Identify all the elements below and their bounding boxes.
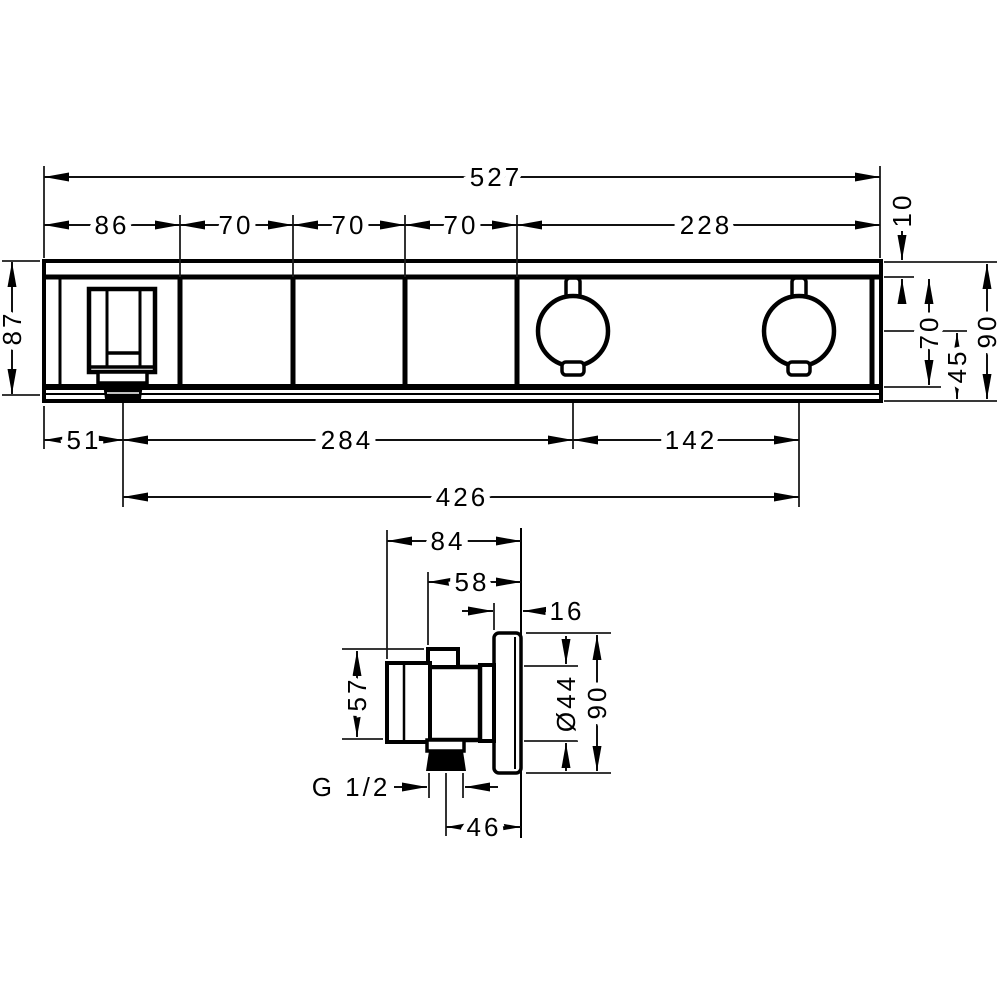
dim-label-dia44: Ø44 (551, 674, 581, 732)
dim-label-426: 426 (436, 482, 488, 512)
dim-escutcheon-16: 16 (462, 596, 584, 630)
dim-label-228: 228 (680, 210, 732, 240)
outlet-nut (103, 383, 143, 399)
outlet-thread-nut (426, 751, 466, 771)
dim-label-87: 87 (0, 311, 27, 346)
plate-outline (44, 261, 881, 401)
dim-bottom-rows: 51 284 142 426 (44, 403, 799, 512)
dim-label-70b: 70 (332, 210, 367, 240)
handle-front (89, 289, 155, 399)
knob-grip-tab (788, 362, 810, 375)
dim-height-87: 87 (0, 261, 40, 395)
dim-label-51: 51 (67, 425, 102, 455)
knob-grip-tab (562, 362, 584, 375)
dim-label-284: 284 (321, 425, 373, 455)
knob-circle (538, 296, 608, 366)
dim-label-10: 10 (887, 193, 917, 228)
dim-label-57: 57 (342, 677, 372, 712)
handle-profile (387, 663, 430, 742)
dim-label-90-right: 90 (972, 314, 1000, 349)
dim-offset-46: 46 (446, 812, 521, 842)
outlet-collar (427, 740, 464, 751)
knob-circle (764, 296, 834, 366)
select-button-profile (428, 649, 458, 667)
handle-body (89, 289, 155, 372)
dim-label-70c: 70 (444, 210, 479, 240)
dim-label-142: 142 (665, 425, 717, 455)
dim-diameter-44: Ø44 (524, 636, 581, 771)
drawing-page: 527 86 70 70 70 228 87 (0, 0, 1000, 1000)
dim-label-46: 46 (467, 812, 502, 842)
dim-right-stack: 10 70 45 90 (884, 193, 1000, 401)
dim-label-g12: G 1/2 (312, 772, 391, 802)
escutcheon-profile (494, 633, 521, 773)
dim-label-45: 45 (942, 349, 972, 384)
front-view: 527 86 70 70 70 228 87 (0, 162, 1000, 512)
dim-label-16: 16 (550, 596, 585, 626)
dim-label-86: 86 (95, 210, 130, 240)
valve-body-profile (428, 667, 480, 740)
technical-drawing: 527 86 70 70 70 228 87 (0, 0, 1000, 1000)
dim-label-70a: 70 (219, 210, 254, 240)
dim-label-84: 84 (431, 526, 466, 556)
handle-neck (98, 372, 147, 383)
dim-label-58: 58 (455, 567, 490, 597)
side-view: 84 58 16 57 Ø44 (312, 526, 612, 842)
dim-label-70-right: 70 (914, 315, 944, 350)
dim-label-527: 527 (470, 162, 522, 192)
dim-label-90-side: 90 (582, 685, 612, 720)
dim-thread-g12: G 1/2 (312, 772, 498, 802)
